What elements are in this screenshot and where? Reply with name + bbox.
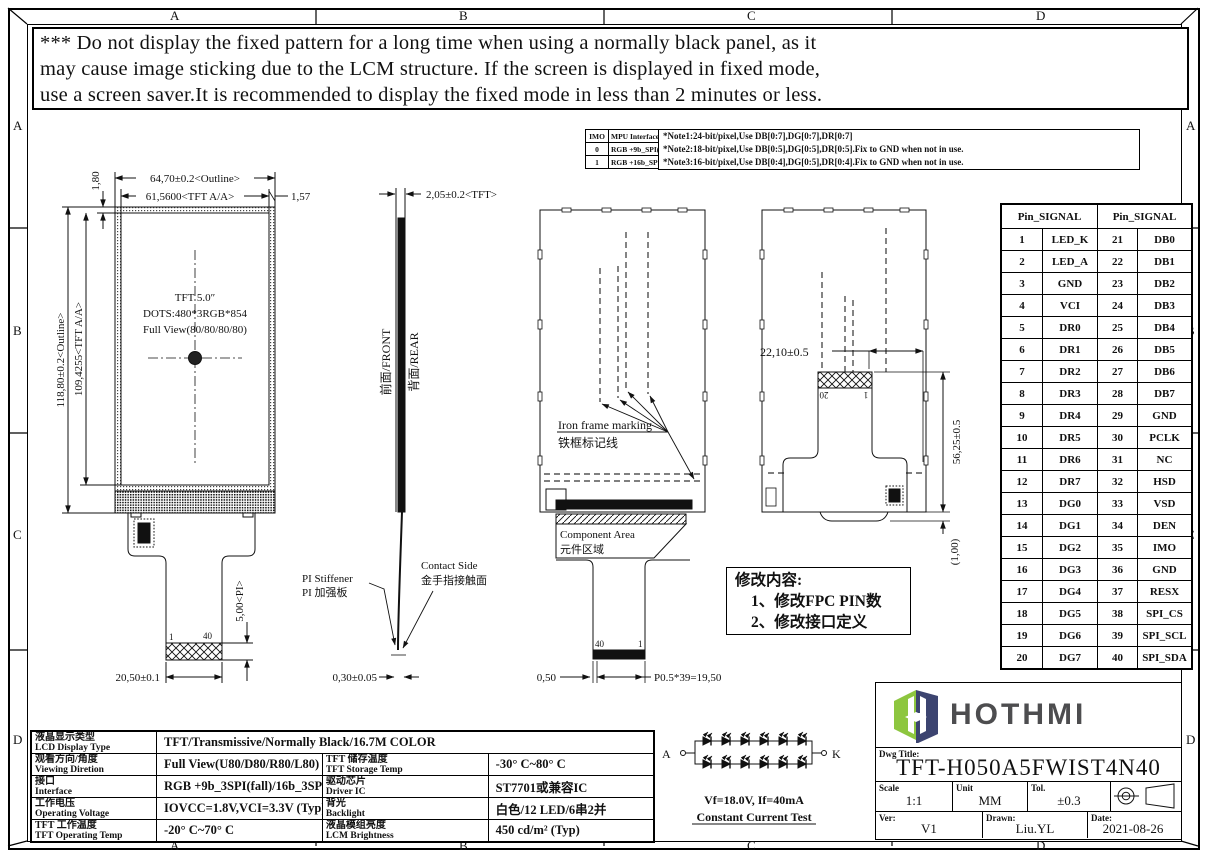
pin-number: 9 [1001,405,1043,427]
revision-title: 修改内容: [735,570,910,591]
spec-value: RGB +9b_3SPI(fall)/16b_3SPI(rise) [157,776,323,798]
pin-signal: HSD [1138,471,1193,493]
pin-number: 20 [1001,647,1043,670]
pin-signal: GND [1138,405,1193,427]
projection-symbol-cell [1111,782,1178,811]
pin-signal: GND [1043,273,1098,295]
third-angle-projection-icon [1112,783,1178,810]
zone-row-a-left: A [13,119,22,132]
tolerance-value: ±0.3 [1028,793,1110,809]
pin-table-header: Pin_SIGNAL [1098,204,1193,229]
version-value: V1 [876,821,982,837]
zone-col-d-bottom: D [1036,839,1045,852]
spec-value: ST7701或兼容IC [488,776,654,798]
pin-signal: DR5 [1043,427,1098,449]
pin-number: 3 [1001,273,1043,295]
spec-label: 背光Backlight [322,798,488,820]
zone-row-c-left: C [13,528,22,541]
pin-signal: DG4 [1043,581,1098,603]
pin-number: 32 [1098,471,1138,493]
pin-table-header: Pin_SIGNAL [1001,204,1098,229]
warning-line-1: *** Do not display the fixed pattern for… [40,30,1181,56]
pin-signal: DB1 [1138,251,1193,273]
pin-signal: DR3 [1043,383,1098,405]
pin-number: 15 [1001,537,1043,559]
pin-number: 1 [1001,229,1043,251]
pin-number: 6 [1001,339,1043,361]
drawn-by-cell: Drawn: Liu.YL [983,812,1088,838]
version-row: Ver: V1 Drawn: Liu.YL Date: 2021-08-26 [876,812,1181,838]
drawn-by-value: Liu.YL [983,821,1087,837]
title-block: HOTHMI Dwg Title: TFT-H050A5FWIST4N40 Sc… [875,682,1182,840]
note-2: *Note2:18-bit/pixel,Use DB[0:5],DG[0:5],… [663,143,1139,156]
pin-number: 36 [1098,559,1138,581]
pin-signal: DB5 [1138,339,1193,361]
pin-number: 5 [1001,317,1043,339]
warning-line-2: may cause image sticking due to the LCM … [40,56,1181,82]
pin-number: 14 [1001,515,1043,537]
pin-signal: DEN [1138,515,1193,537]
pin-signal: DR1 [1043,339,1098,361]
pin-number: 23 [1098,273,1138,295]
spec-label: TFT 储存温度TFT Storage Temp [322,754,488,776]
pin-number: 13 [1001,493,1043,515]
pin-signal: NC [1138,449,1193,471]
pin-signal: PCLK [1138,427,1193,449]
unit-value: MM [953,793,1027,809]
pin-signal: DR0 [1043,317,1098,339]
zone-col-d-top: D [1036,9,1045,22]
date-value: 2021-08-26 [1088,821,1178,837]
pin-signal: DB2 [1138,273,1193,295]
pin-number: 35 [1098,537,1138,559]
pin-number: 28 [1098,383,1138,405]
hothmi-logo-icon [890,687,942,743]
pin-number: 22 [1098,251,1138,273]
zone-col-a-top: A [170,9,179,22]
scale-row: Scale 1:1 Unit MM Tol. ±0.3 [876,782,1181,812]
logo-wordmark: HOTHMI [950,698,1086,732]
date-cell: Date: 2021-08-26 [1088,812,1178,838]
pin-signal: DG2 [1043,537,1098,559]
pin-number: 29 [1098,405,1138,427]
pin-number: 11 [1001,449,1043,471]
pin-signal-table: Pin_SIGNAL Pin_SIGNAL 1LED_K21DB0 2LED_A… [1000,203,1193,670]
warning-line-3: use a screen saver.It is recommended to … [40,82,1181,108]
pin-signal: DR4 [1043,405,1098,427]
revision-item-1: 1、修改FPC PIN数 [735,591,910,612]
pin-number: 7 [1001,361,1043,383]
pin-number: 27 [1098,361,1138,383]
pin-number: 33 [1098,493,1138,515]
tolerance-cell: Tol. ±0.3 [1028,782,1111,811]
pin-number: 31 [1098,449,1138,471]
pin-signal: GND [1138,559,1193,581]
spec-label: 观看方向/角度Viewing Diretion [31,754,157,776]
pin-number: 25 [1098,317,1138,339]
spec-value: -20° C~70° C [157,820,323,843]
zone-row-a-right: A [1186,119,1195,132]
pin-signal: DR7 [1043,471,1098,493]
imo-cell: 1 [586,156,609,169]
revision-item-2: 2、修改接口定义 [735,612,910,633]
pin-signal: SPI_SDA [1138,647,1193,670]
interface-notes: *Note1:24-bit/pixel,Use DB[0:7],DG[0:7],… [658,129,1140,170]
spec-label: 驱动芯片Driver IC [322,776,488,798]
pin-signal: RESX [1138,581,1193,603]
pin-signal: DB6 [1138,361,1193,383]
spec-value: 450 cd/m² (Typ) [488,820,654,843]
pin-number: 38 [1098,603,1138,625]
pin-number: 19 [1001,625,1043,647]
pin-signal: LED_K [1043,229,1098,251]
pin-number: 34 [1098,515,1138,537]
pin-number: 30 [1098,427,1138,449]
pin-signal: DB7 [1138,383,1193,405]
pin-number: 2 [1001,251,1043,273]
spec-label: 工作电压Operating Voltage [31,798,157,820]
spec-value: -30° C~80° C [488,754,654,776]
pin-signal: SPI_SCL [1138,625,1193,647]
pin-number: 16 [1001,559,1043,581]
pin-number: 10 [1001,427,1043,449]
pin-signal: DG0 [1043,493,1098,515]
pin-number: 21 [1098,229,1138,251]
note-1: *Note1:24-bit/pixel,Use DB[0:7],DG[0:7],… [663,130,1139,143]
pin-number: 24 [1098,295,1138,317]
pin-signal: VSD [1138,493,1193,515]
spec-value: Full View(U80/D80/R80/L80) [157,754,323,776]
pin-number: 39 [1098,625,1138,647]
pin-signal: DR2 [1043,361,1098,383]
spec-value: IOVCC=1.8V,VCI=3.3V (Typ) [157,798,323,820]
pin-signal: DR6 [1043,449,1098,471]
zone-row-d-left: D [13,733,22,746]
spec-value: TFT/Transmissive/Normally Black/16.7M CO… [157,731,655,754]
pin-signal: SPI_CS [1138,603,1193,625]
pin-signal: DG5 [1043,603,1098,625]
imo-header-col1: IMO [586,130,609,143]
spec-label: 接口Interface [31,776,157,798]
scale-cell: Scale 1:1 [876,782,953,811]
pin-signal: DG7 [1043,647,1098,670]
pin-signal: IMO [1138,537,1193,559]
revision-box: 修改内容: 1、修改FPC PIN数 2、修改接口定义 [726,567,911,635]
zone-col-c-bottom: C [747,839,756,852]
pin-signal: DG6 [1043,625,1098,647]
note-3: *Note3:16-bit/pixel,Use DB[0:4],DG[0:5],… [663,156,1139,169]
pin-number: 4 [1001,295,1043,317]
version-cell: Ver: V1 [876,812,983,838]
spec-table: 液晶显示类型LCD Display Type TFT/Transmissive/… [30,730,655,843]
dwg-title-row: Dwg Title: TFT-H050A5FWIST4N40 [876,748,1181,782]
spec-label: 液晶显示类型LCD Display Type [31,731,157,754]
unit-cell: Unit MM [953,782,1028,811]
pin-signal: DB0 [1138,229,1193,251]
zone-row-d-right: D [1186,733,1195,746]
pin-number: 18 [1001,603,1043,625]
spec-value: 白色/12 LED/6串2并 [488,798,654,820]
pin-signal: DB4 [1138,317,1193,339]
zone-col-c-top: C [747,9,756,22]
drawing-sheet: 64,70±0.2<Outline> 61,5600<TFT A/A> 1,57… [0,0,1206,853]
zone-col-b-top: B [459,9,468,22]
pin-number: 40 [1098,647,1138,670]
pin-number: 17 [1001,581,1043,603]
spec-label: 液晶模组亮度LCM Brightness [322,820,488,843]
dwg-title: TFT-H050A5FWIST4N40 [876,755,1181,781]
pin-signal: DB3 [1138,295,1193,317]
pin-number: 8 [1001,383,1043,405]
logo-row: HOTHMI [876,683,1181,748]
pin-number: 12 [1001,471,1043,493]
zone-row-b-left: B [13,324,22,337]
imo-cell: 0 [586,143,609,156]
pin-signal: DG3 [1043,559,1098,581]
warning-box: *** Do not display the fixed pattern for… [32,27,1189,110]
pin-number: 26 [1098,339,1138,361]
pin-signal: LED_A [1043,251,1098,273]
pin-signal: DG1 [1043,515,1098,537]
spec-label: TFT 工作温度TFT Operating Temp [31,820,157,843]
scale-value: 1:1 [876,793,952,809]
pin-signal: VCI [1043,295,1098,317]
pin-number: 37 [1098,581,1138,603]
